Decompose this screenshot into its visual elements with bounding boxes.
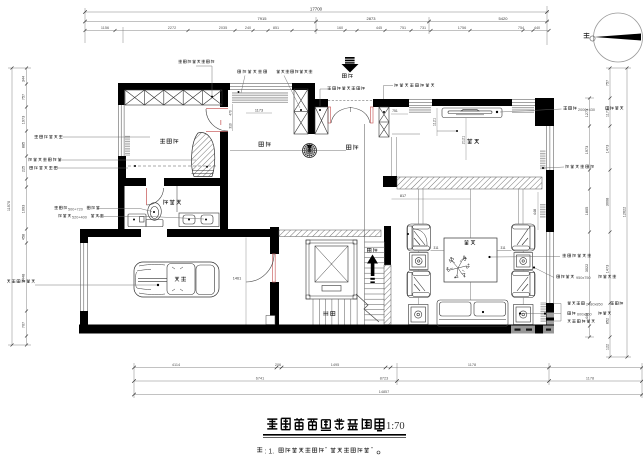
svg-text:757: 757 [606, 80, 610, 86]
svg-text:206: 206 [275, 363, 281, 367]
svg-text:2121: 2121 [462, 136, 466, 144]
svg-text:1178: 1178 [468, 363, 476, 367]
svg-text:707: 707 [22, 322, 26, 328]
svg-text:1461: 1461 [233, 277, 241, 281]
svg-text:1:70: 1:70 [386, 421, 405, 432]
svg-text:1473: 1473 [606, 145, 610, 153]
svg-text:8723: 8723 [380, 377, 388, 381]
svg-text:458: 458 [22, 234, 26, 240]
svg-text:": " [371, 447, 373, 453]
svg-text:5420: 5420 [499, 16, 509, 21]
svg-text:": " [325, 447, 327, 453]
svg-text:1156: 1156 [101, 26, 109, 30]
svg-text:757: 757 [22, 94, 26, 100]
svg-text:1495: 1495 [331, 363, 339, 367]
svg-text:754: 754 [518, 26, 524, 30]
svg-text:751: 751 [392, 109, 398, 113]
svg-text:12622: 12622 [623, 207, 627, 218]
svg-text:520+400: 520+400 [72, 215, 87, 219]
svg-text:852: 852 [606, 318, 610, 324]
svg-text:950x750: 950x750 [576, 276, 591, 280]
svg-text:11970: 11970 [7, 201, 11, 211]
svg-text:160: 160 [337, 26, 343, 30]
svg-text:240: 240 [245, 26, 251, 30]
svg-text:440: 440 [534, 26, 540, 30]
svg-text:500+720: 500+720 [68, 207, 83, 211]
svg-text:817: 817 [400, 194, 406, 198]
svg-text:445: 445 [376, 26, 382, 30]
svg-text:731: 731 [420, 26, 426, 30]
svg-text:1173: 1173 [255, 109, 263, 113]
svg-text:1093: 1093 [22, 205, 26, 213]
svg-text:2480x850: 2480x850 [586, 303, 603, 307]
svg-text:311: 311 [433, 246, 438, 250]
svg-text:751: 751 [400, 26, 406, 30]
svg-text:2035: 2035 [219, 26, 227, 30]
svg-text:3008: 3008 [606, 198, 610, 206]
svg-text:310: 310 [229, 123, 233, 129]
svg-text:1973: 1973 [22, 116, 26, 124]
svg-text:1756: 1756 [458, 26, 466, 30]
svg-text:344: 344 [22, 76, 26, 82]
svg-text:2272: 2272 [168, 26, 176, 30]
svg-text:4114: 4114 [172, 363, 180, 367]
svg-text:225: 225 [22, 166, 26, 172]
svg-text:2000+430: 2000+430 [578, 108, 595, 112]
svg-text:1973: 1973 [585, 146, 589, 154]
svg-text:7915: 7915 [258, 16, 268, 21]
svg-text:311: 311 [500, 246, 505, 250]
svg-text:600x550: 600x550 [577, 313, 592, 317]
svg-text:: 1.: : 1. [265, 449, 275, 456]
svg-text:6741: 6741 [256, 377, 264, 381]
svg-text:3022: 3022 [585, 264, 589, 272]
svg-text:448: 448 [533, 209, 537, 215]
svg-text:14857: 14857 [379, 390, 390, 394]
svg-text:1121: 1121 [433, 118, 437, 126]
svg-text:470: 470 [229, 110, 233, 116]
svg-text:851: 851 [273, 26, 279, 30]
svg-text:1805: 1805 [585, 207, 589, 215]
svg-text:885: 885 [22, 142, 26, 148]
svg-text:1178: 1178 [586, 377, 594, 381]
svg-text:2873: 2873 [367, 16, 377, 21]
svg-text:1473: 1473 [606, 265, 610, 273]
svg-text:1173: 1173 [606, 109, 610, 117]
svg-text:122: 122 [606, 344, 610, 350]
svg-text:17700: 17700 [310, 7, 323, 12]
